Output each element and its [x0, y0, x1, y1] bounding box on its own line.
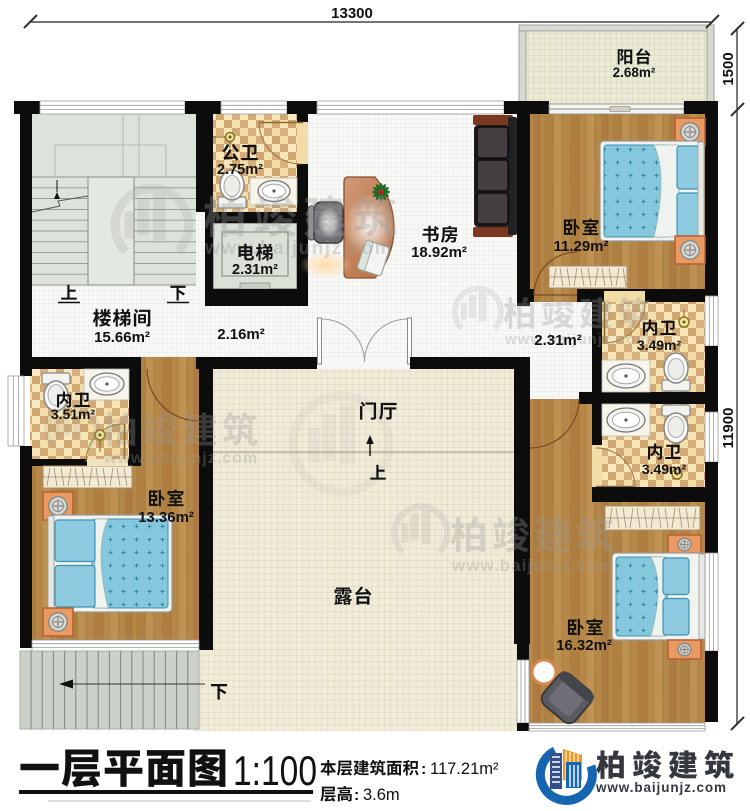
svg-text:3.51m²: 3.51m²: [51, 406, 96, 422]
svg-text:11900: 11900: [720, 408, 737, 449]
svg-text::: :: [354, 787, 359, 804]
svg-text:www.baijunjz.com: www.baijunjz.com: [204, 238, 393, 259]
svg-text:11.29m²: 11.29m²: [553, 238, 608, 255]
svg-text::: :: [421, 761, 426, 778]
svg-text:www.baijunjz.com: www.baijunjz.com: [595, 780, 727, 795]
svg-text:16.32m²: 16.32m²: [556, 637, 612, 654]
svg-text:18.92m²: 18.92m²: [411, 244, 467, 261]
svg-text:www.baijunjz.com: www.baijunjz.com: [103, 450, 258, 467]
svg-text:2.31m²: 2.31m²: [232, 262, 278, 278]
svg-text:3.49m²: 3.49m²: [642, 461, 687, 477]
svg-text:13300: 13300: [331, 5, 373, 22]
svg-text:3.6m: 3.6m: [363, 786, 400, 804]
svg-text:2.75m²: 2.75m²: [217, 162, 263, 178]
svg-text:15.66m²: 15.66m²: [94, 329, 150, 346]
svg-text:2.31m²: 2.31m²: [534, 332, 582, 349]
svg-text:117.21m²: 117.21m²: [430, 760, 499, 778]
svg-text:2.16m²: 2.16m²: [217, 326, 265, 343]
svg-text:www.baijunjz.com: www.baijunjz.com: [451, 556, 615, 575]
svg-text:3.49m²: 3.49m²: [637, 337, 682, 353]
svg-text:1:100: 1:100: [233, 747, 317, 794]
svg-text:1500: 1500: [720, 52, 737, 85]
svg-text:2.68m²: 2.68m²: [613, 65, 656, 80]
svg-text:13.36m²: 13.36m²: [138, 509, 194, 526]
